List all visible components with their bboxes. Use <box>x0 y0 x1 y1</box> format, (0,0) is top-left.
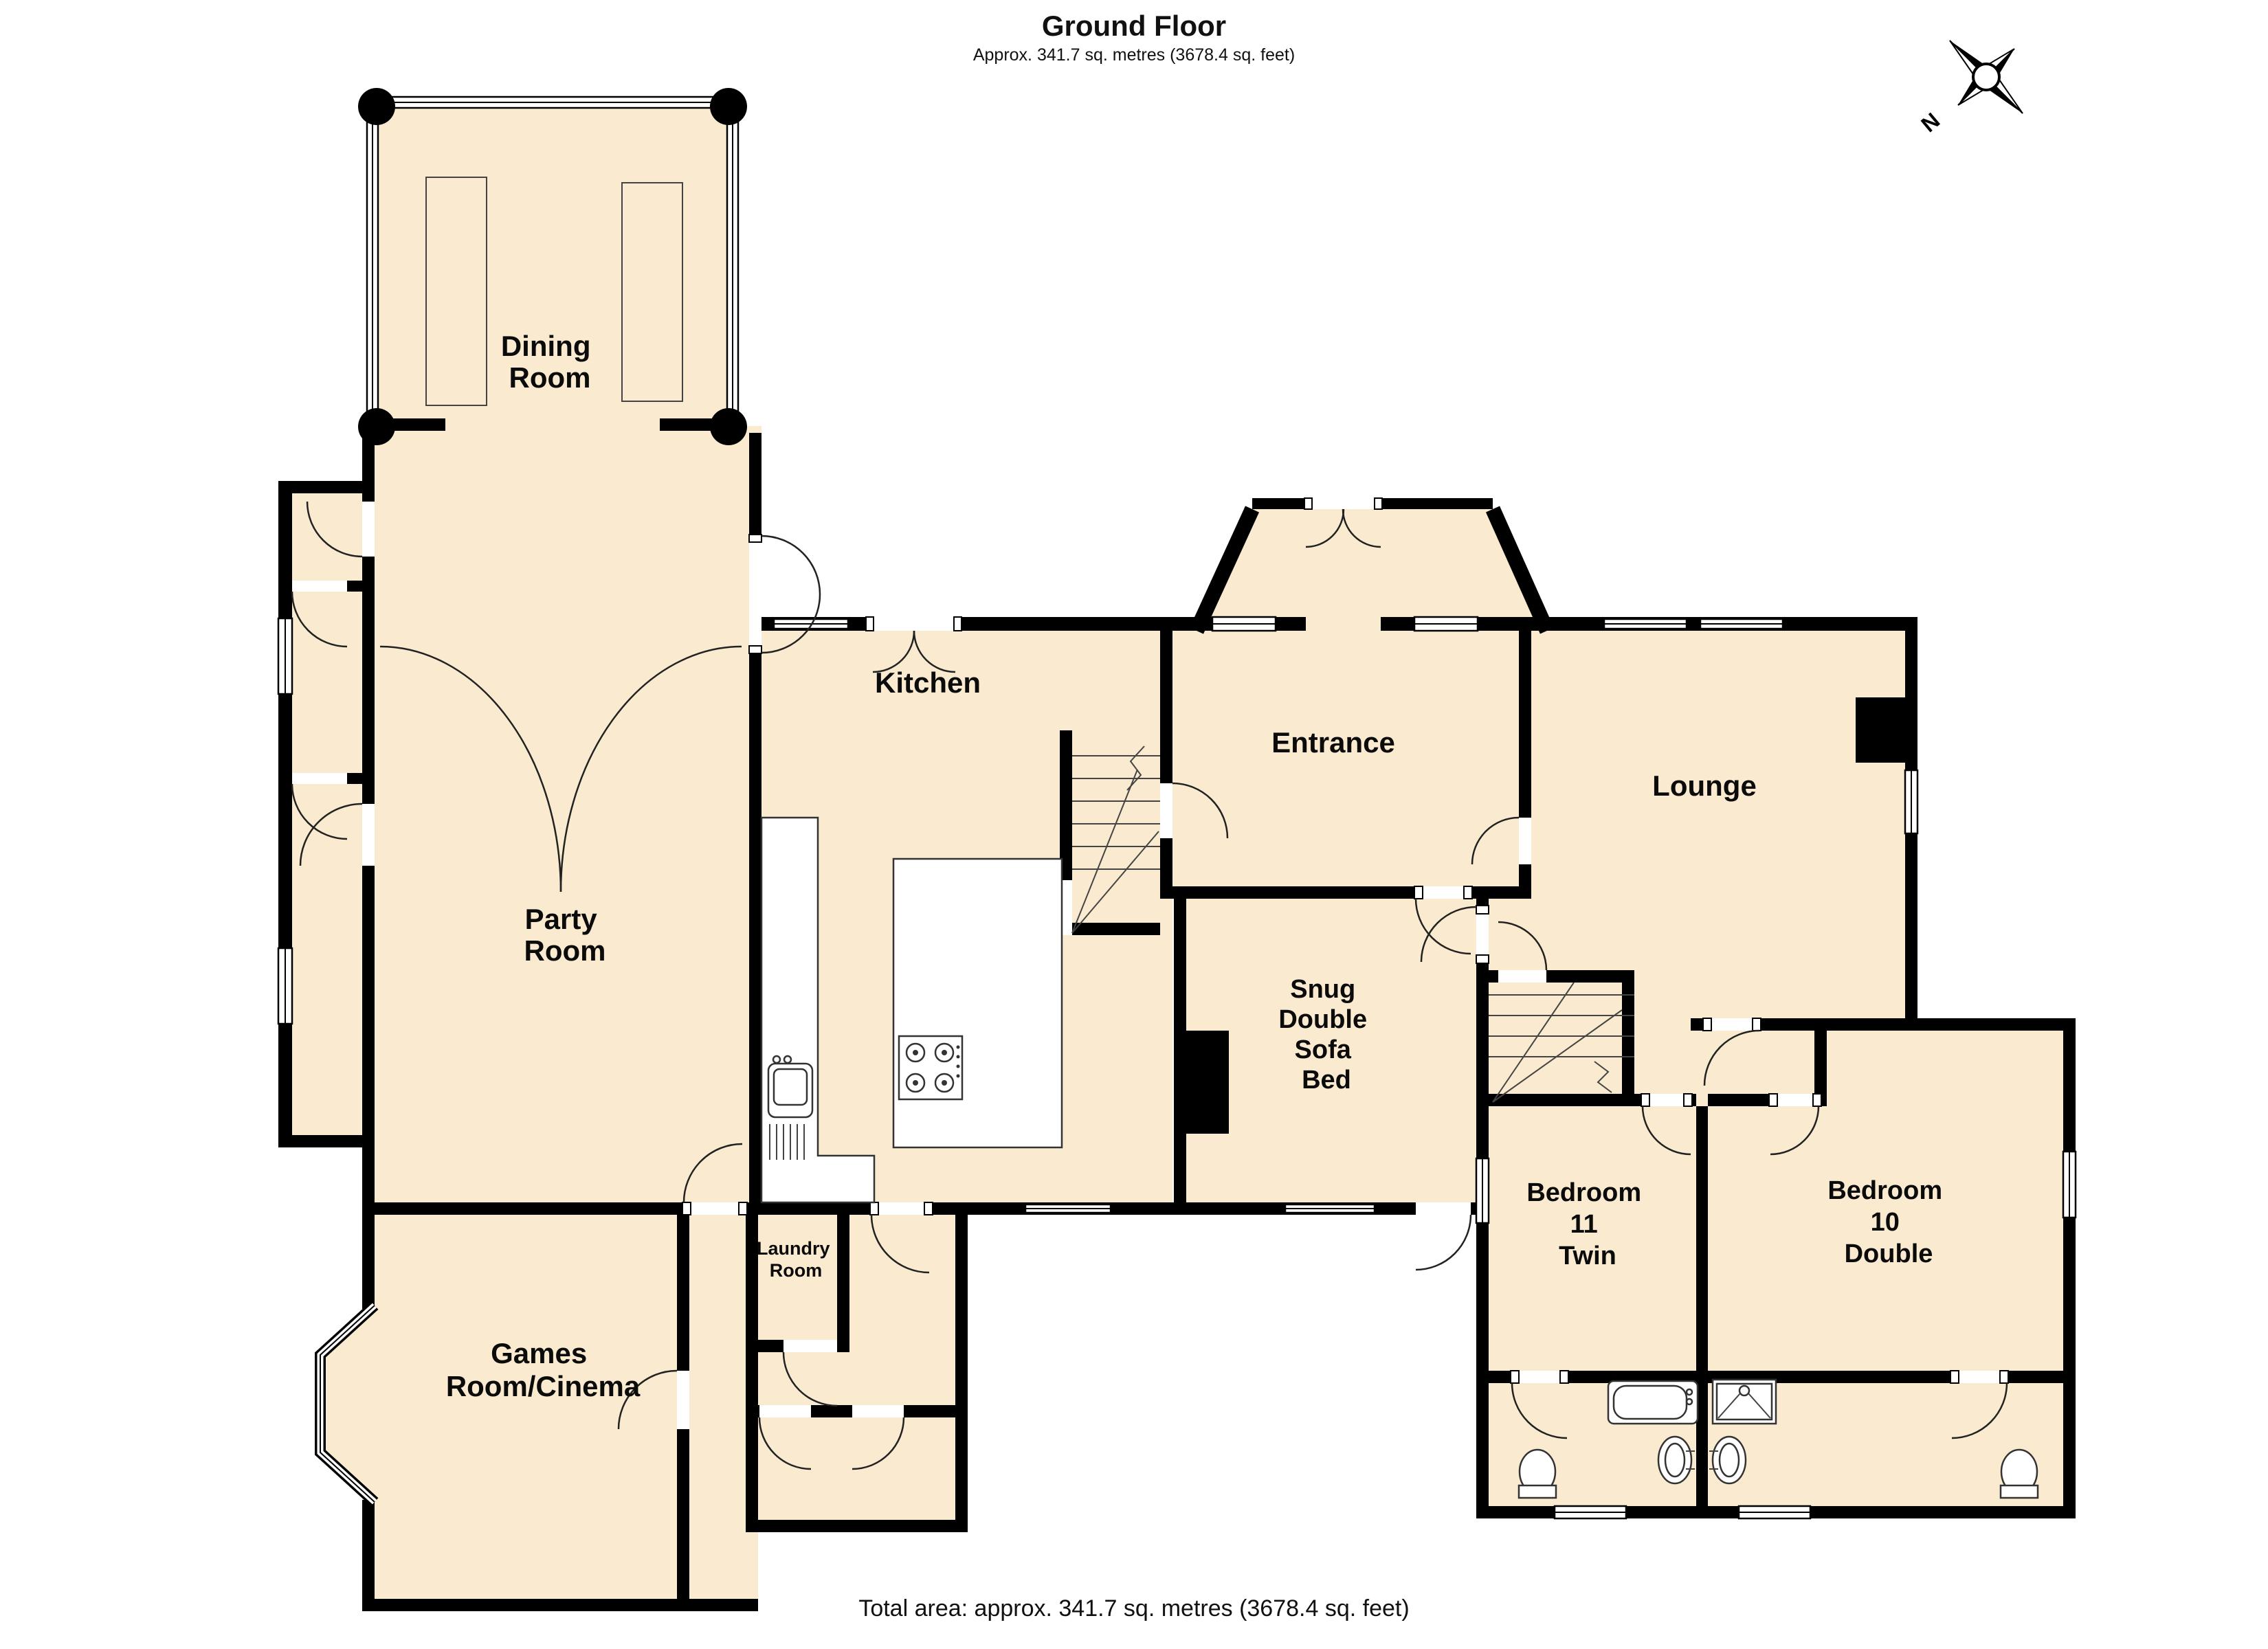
room-games <box>362 1215 689 1611</box>
floor-plan-page: N Ground Floor Approx. 341.7 sq. metres … <box>0 0 2268 1649</box>
label-kitchen: Kitchen <box>875 666 981 699</box>
label-party-room: Party Room <box>524 903 606 967</box>
label-lounge: Lounge <box>1652 770 1757 802</box>
shower-icon <box>1713 1380 1776 1424</box>
room-entrance <box>1172 631 1531 899</box>
total-area-footer: Total area: approx. 341.7 sq. metres (36… <box>858 1595 1409 1622</box>
compass-icon: N <box>1916 12 2051 142</box>
bath-icon <box>1608 1381 1698 1424</box>
toilet-icon <box>2001 1450 2038 1498</box>
label-entrance: Entrance <box>1271 726 1395 759</box>
toilet-icon <box>1519 1450 1556 1498</box>
floor-plan-canvas: N Ground Floor Approx. 341.7 sq. metres … <box>0 0 2268 1649</box>
page-subtitle: Approx. 341.7 sq. metres (3678.4 sq. fee… <box>973 45 1295 65</box>
page-title: Ground Floor <box>1042 10 1226 42</box>
label-dining-room: Dining Room <box>501 330 599 394</box>
kitchen-island <box>893 859 1062 1147</box>
compass-north-label: N <box>1916 108 1944 137</box>
